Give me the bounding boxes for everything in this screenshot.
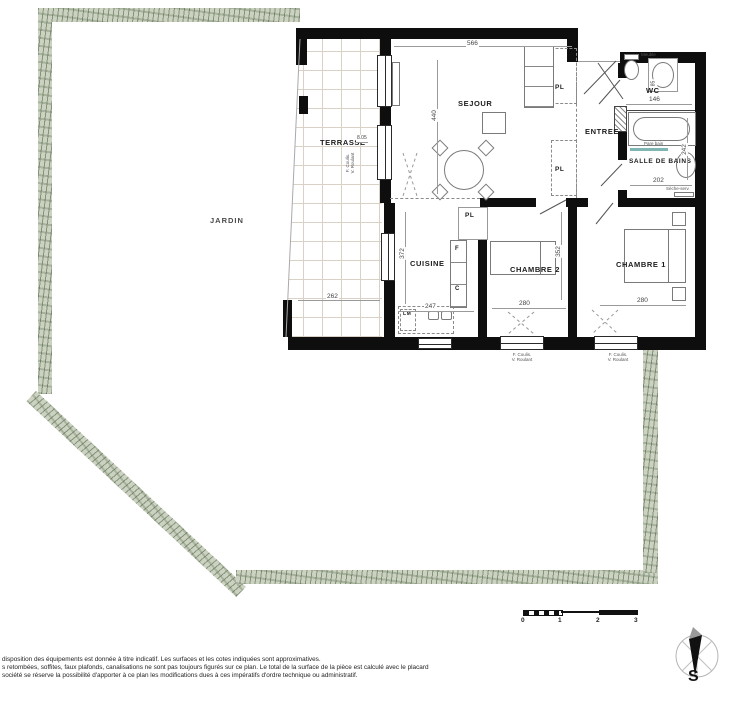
dimline — [398, 311, 474, 312]
towel-radiator — [674, 192, 694, 197]
annotation-seche-serviettes: Sèche-serv. — [666, 186, 690, 191]
dim-terrasse-cote: 8.05 — [356, 135, 368, 143]
sejour-cuisine-limit — [390, 198, 480, 199]
dimline — [492, 308, 566, 309]
toilet-bowl — [624, 60, 639, 80]
sofa — [524, 46, 554, 108]
bathtub-inner — [633, 117, 690, 141]
wall-top-sejour — [296, 28, 578, 39]
dim-chambre1-largeur: 280 — [636, 297, 649, 304]
annotation-meuble: Meuble — [641, 52, 656, 57]
annotation-pare-bain: Pare bain — [644, 141, 663, 146]
wall-entree-wc-c — [618, 190, 627, 198]
dim-cuisine-profondeur: 372 — [399, 247, 406, 260]
bed-chambre1 — [624, 229, 686, 283]
wall-wc-sdb-divider — [622, 110, 695, 111]
dim-sejour-profondeur: 440 — [431, 109, 438, 122]
dim-wc-largeur: 146 — [648, 96, 661, 103]
room-label-sejour: SEJOUR — [458, 99, 492, 108]
disclaimer-text: disposition des équipements est donnée à… — [2, 656, 602, 679]
sink-bowl — [441, 311, 452, 320]
room-label-pl-cuisine: PL — [465, 212, 475, 219]
appliance-cooktop: C — [455, 286, 460, 292]
garden-border-diagonal — [26, 391, 245, 597]
terrace-post-mid — [299, 96, 308, 114]
compass-needle-facet — [689, 627, 702, 639]
annotation-volet: V. Roulant — [496, 357, 548, 362]
window-cuisine-south — [418, 338, 452, 349]
dim-chambre2-largeur: 280 — [518, 300, 531, 307]
nightstand — [672, 212, 686, 226]
window-cuisine-west — [381, 233, 395, 281]
scale-bar-segment-thin — [561, 611, 599, 613]
window-chambre1-south — [594, 336, 638, 350]
compass-south-label: S — [688, 668, 699, 686]
dimline — [600, 305, 686, 306]
nightstand — [672, 287, 686, 301]
dim-sdb-largeur: 202 — [652, 177, 665, 184]
terrace-post-bottom — [283, 300, 292, 337]
coffee-table — [482, 112, 506, 134]
disclaimer-line-3: société se réserve la possibilité d'appo… — [2, 672, 602, 680]
scale-bar-segment-dashed — [523, 610, 563, 616]
room-label-wc: WC — [646, 86, 660, 95]
room-label-chambre1: CHAMBRE 1 — [616, 260, 666, 269]
terrace-post-top — [296, 39, 307, 65]
entry-threshold — [578, 61, 620, 62]
dim-sejour-largeur: 566 — [466, 40, 479, 47]
room-label-chambre2: CHAMBRE 2 — [510, 265, 560, 274]
dim-sdb-profondeur: 242 — [681, 143, 688, 156]
disclaimer-line-2: s retombées, soffites, faux plafonds, ca… — [2, 664, 602, 672]
bath-screen — [630, 148, 668, 151]
dim-cuisine-largeur: 247 — [424, 303, 437, 310]
dining-table — [444, 150, 484, 190]
room-label-pl-entree-haut: PL — [555, 84, 565, 91]
scale-bar-segment-thick — [599, 610, 638, 615]
annotation-volet: V. Roulant — [350, 143, 355, 183]
scale-tick-2: 2 — [596, 617, 600, 624]
disclaimer-line-1: disposition des équipements est donnée à… — [2, 656, 602, 664]
dimline — [298, 300, 380, 301]
window-chambre2-south — [500, 336, 544, 350]
dim-wc-cote: 85 — [650, 80, 657, 88]
scale-tick-0: 0 — [521, 617, 525, 624]
wall-chambre2-chambre1 — [568, 207, 577, 337]
scale-tick-1: 1 — [558, 617, 562, 624]
garden-border-bottom — [236, 570, 658, 584]
wall-bottom — [288, 337, 706, 350]
tv-bench — [392, 62, 400, 106]
baydoor-sejour-west — [377, 125, 392, 180]
room-label-sdb: SALLE DE BAINS — [629, 158, 692, 165]
dimline — [437, 60, 438, 194]
chair — [432, 140, 449, 157]
garden-border-left — [38, 8, 52, 394]
sink-bowl — [428, 311, 439, 320]
dimline — [626, 104, 692, 105]
chair — [478, 140, 495, 157]
room-label-pl-entree-bas: PL — [555, 166, 565, 173]
annotation-volet: V. Roulant — [592, 357, 644, 362]
garden-border-top — [38, 8, 300, 22]
dim-terrasse-largeur: 262 — [326, 293, 339, 300]
room-label-jardin: JARDIN — [210, 216, 244, 225]
window-sejour-west — [377, 55, 392, 107]
room-label-cuisine: CUISINE — [410, 259, 445, 268]
room-label-entree: ENTREE — [585, 127, 619, 136]
annotation-window-terrasse: F. Coulis. V. Roulant — [345, 143, 355, 183]
wall-cuisine-chambre2 — [478, 238, 487, 337]
door-gap-chambre1 — [588, 198, 618, 207]
door-gap-chambre2 — [536, 198, 566, 207]
floor-plan-sheet: SEJOUR TERRASSE JARDIN CUISINE ENTREE WC… — [0, 0, 739, 702]
annotation-window-chambre1: F. Coulis. V. Roulant — [592, 352, 644, 362]
appliance-fridge: F — [455, 246, 459, 252]
dim-chambre2-profondeur: 352 — [555, 245, 562, 258]
dimline — [394, 46, 572, 47]
annotation-window-chambre2: F. Coulis. V. Roulant — [496, 352, 548, 362]
garden-border-right — [643, 345, 658, 573]
bed-chambre1-pillow-line — [668, 230, 669, 282]
placard-entree-haut — [551, 48, 577, 104]
scale-tick-3: 3 — [634, 617, 638, 624]
